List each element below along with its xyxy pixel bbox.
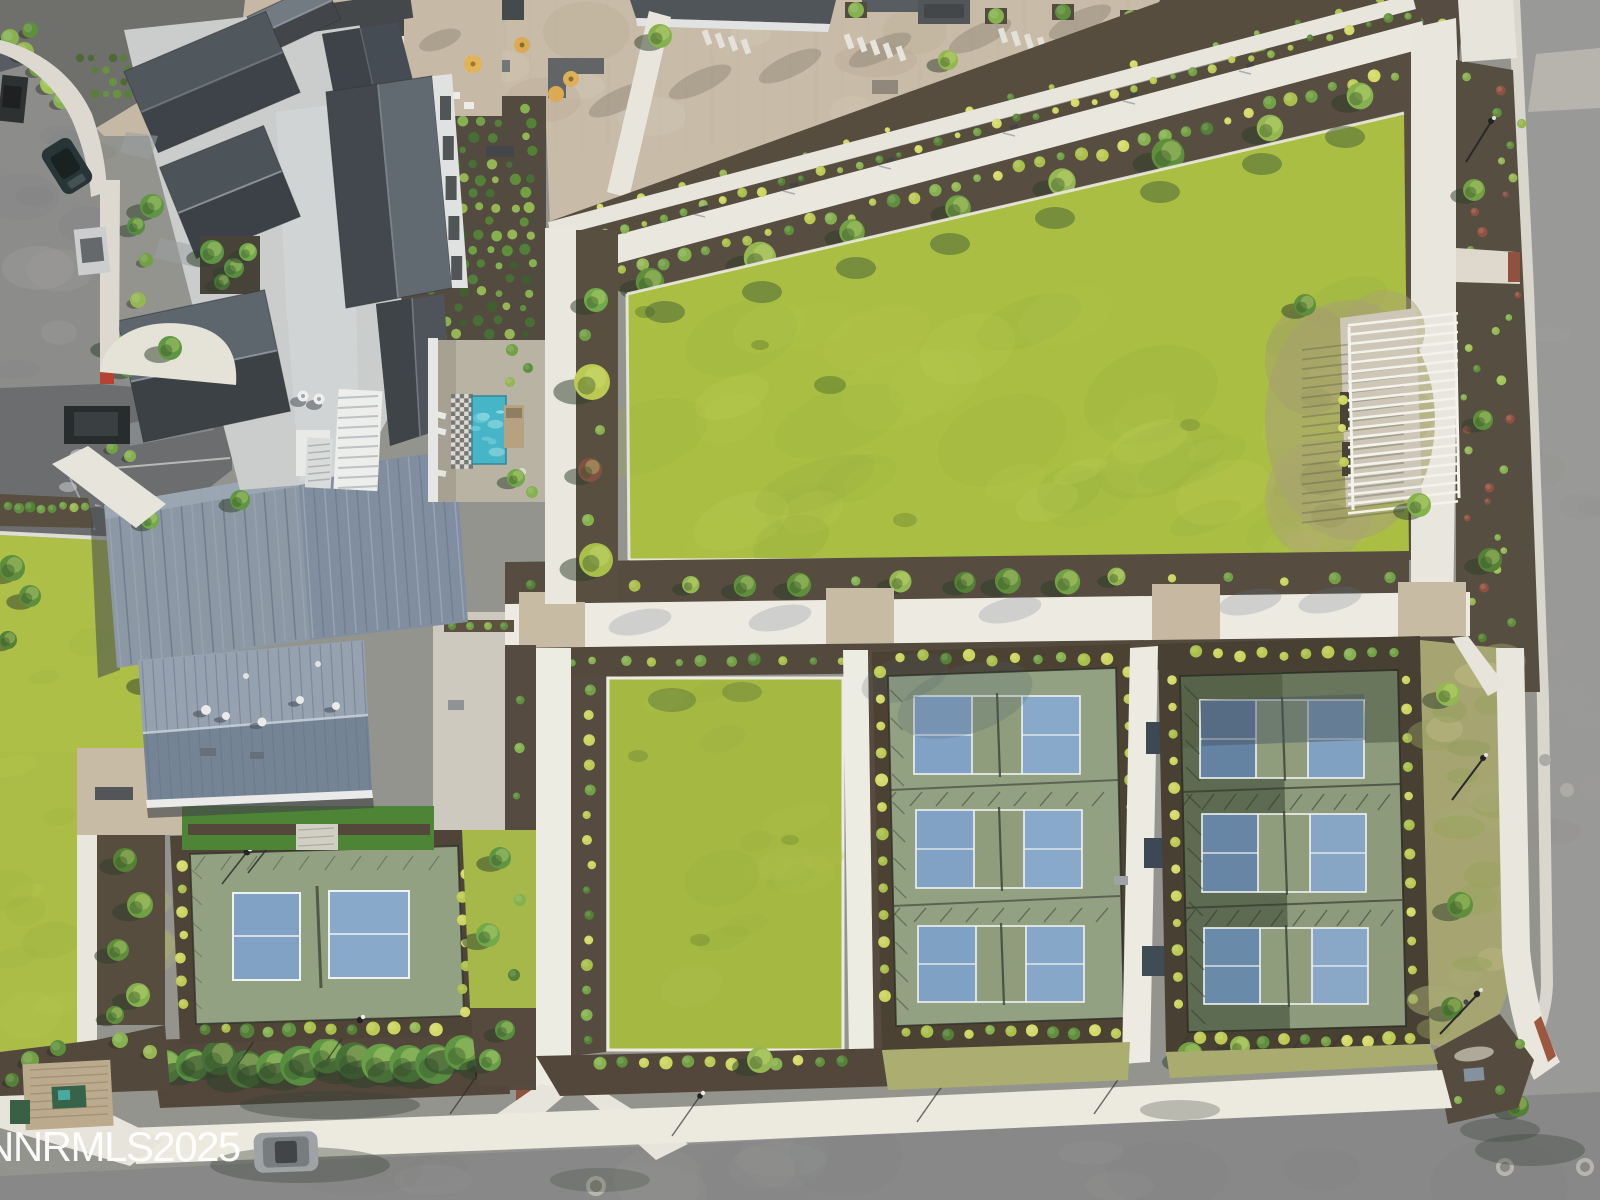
svg-text:NNRMLS2025: NNRMLS2025 xyxy=(0,1123,240,1170)
